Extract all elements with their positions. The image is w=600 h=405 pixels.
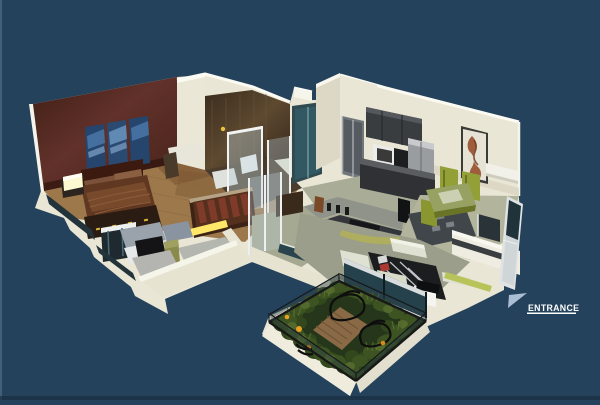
svg-text:ENTRANCE: ENTRANCE — [528, 303, 579, 313]
